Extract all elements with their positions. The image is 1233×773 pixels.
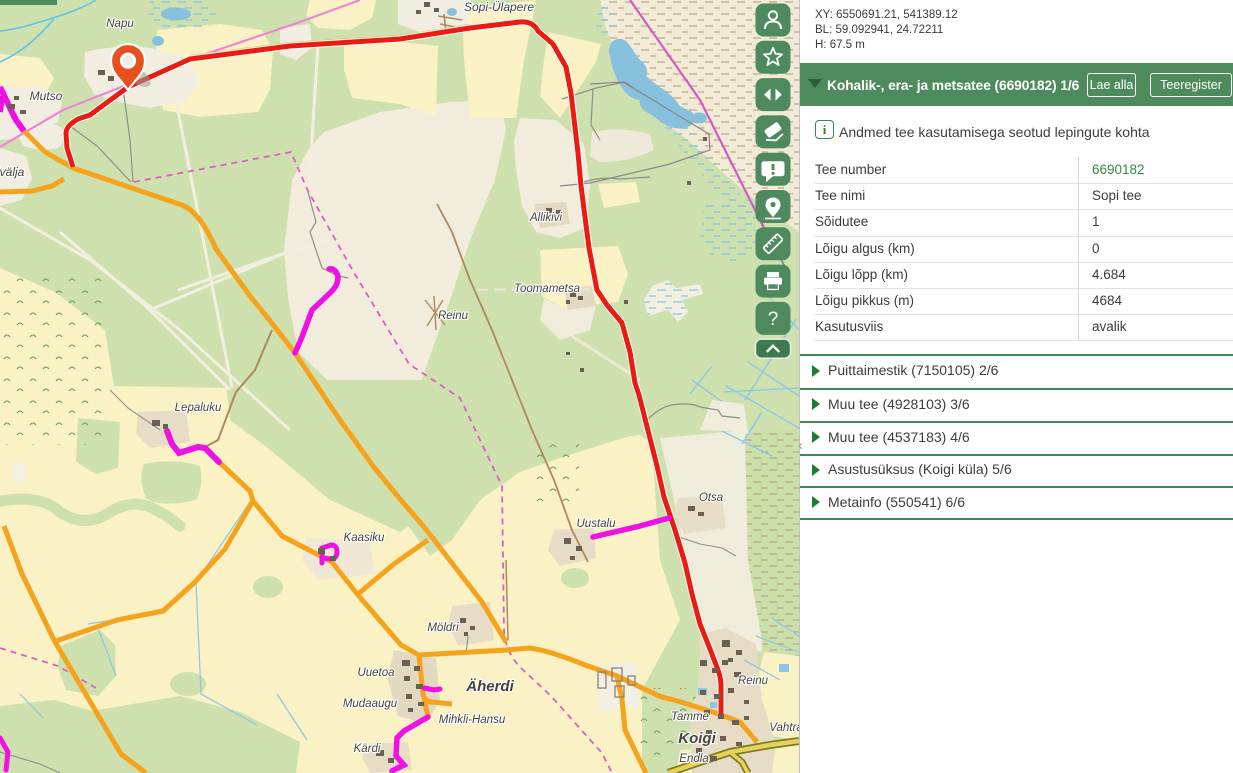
svg-text:Reinu: Reinu bbox=[738, 675, 769, 687]
svg-text:Mutso: Mutso bbox=[30, 89, 63, 103]
svg-text:Vahtra: Vahtra bbox=[769, 722, 799, 734]
svg-text:Mihkli-Hansu: Mihkli-Hansu bbox=[439, 714, 506, 726]
svg-text:Allikivi: Allikivi bbox=[529, 212, 562, 224]
svg-text:Koigi: Koigi bbox=[678, 730, 716, 747]
svg-text:Uuetoa: Uuetoa bbox=[357, 667, 394, 679]
svg-text:Äherdi: Äherdi bbox=[465, 678, 514, 695]
svg-text:Möldri: Möldri bbox=[427, 622, 459, 634]
svg-text:Reinu: Reinu bbox=[438, 310, 469, 322]
svg-text:Uustalu: Uustalu bbox=[577, 518, 617, 530]
svg-text:Toomametsa: Toomametsa bbox=[514, 283, 580, 295]
svg-text:Endla: Endla bbox=[679, 753, 708, 765]
svg-text:Kärdi: Kärdi bbox=[354, 743, 381, 755]
svg-text:Napu: Napu bbox=[106, 18, 134, 30]
svg-text:ivälja: ivälja bbox=[0, 165, 25, 179]
svg-text:Mudaaugu: Mudaaugu bbox=[343, 698, 398, 710]
svg-text:?: ? bbox=[768, 309, 779, 330]
svg-text:Otsa: Otsa bbox=[699, 492, 723, 504]
svg-text:Kaasiku: Kaasiku bbox=[344, 532, 386, 544]
svg-text:Lepaluku: Lepaluku bbox=[175, 402, 222, 414]
svg-text:Sopi-Ülapere: Sopi-Ülapere bbox=[464, 0, 534, 14]
svg-text:Tamme: Tamme bbox=[671, 711, 709, 723]
